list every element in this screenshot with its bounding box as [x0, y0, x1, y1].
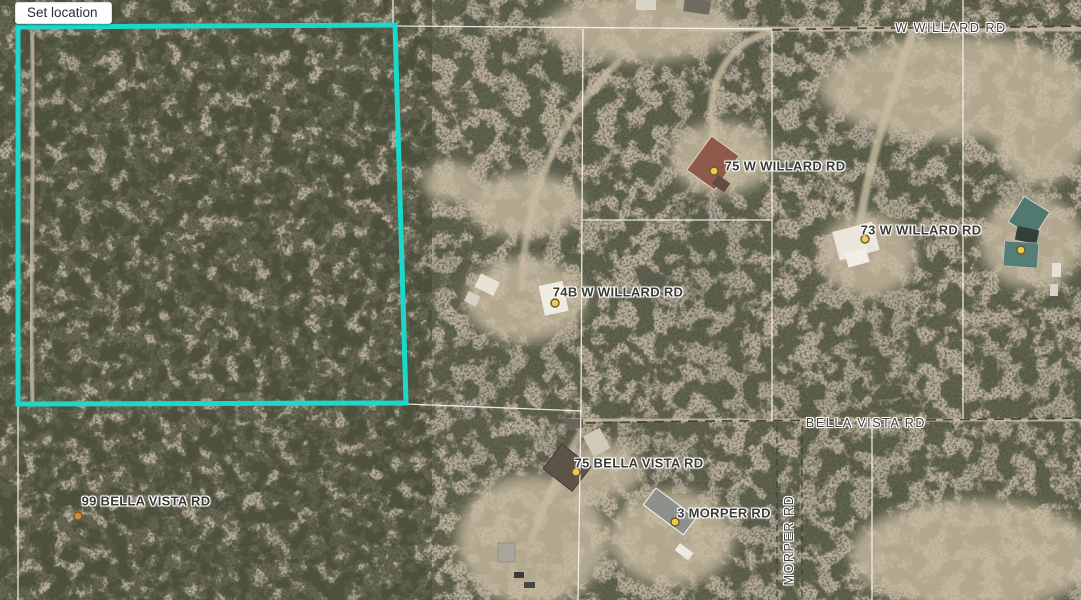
address-label-75-w-willard: 75 W WILLARD RD [725, 159, 846, 174]
set-location-button[interactable]: Set location [15, 2, 112, 24]
road-label-morper-rd: MORPER RD [782, 495, 796, 586]
address-label-73-w-willard: 73 W WILLARD RD [861, 223, 982, 238]
parcel-point-marker[interactable] [551, 299, 559, 307]
parcel-point-marker[interactable] [710, 167, 718, 175]
address-label-75-bella-vista: 75 BELLA VISTA RD [575, 456, 704, 471]
address-label-99-bella-vista: 99 BELLA VISTA RD [82, 494, 211, 509]
parcel-point-marker[interactable] [1017, 246, 1025, 254]
address-label-74b-w-willard: 74B W WILLARD RD [553, 285, 683, 300]
parcel-point-marker[interactable] [74, 512, 82, 520]
road-label-w-willard-rd: W WILLARD RD [895, 21, 1007, 35]
vehicle [1050, 284, 1058, 296]
building-footprint [498, 543, 515, 562]
address-label-3-morper: 3 MORPER RD [677, 506, 771, 521]
vehicle [1052, 263, 1061, 277]
vehicle [524, 582, 535, 588]
map-view[interactable]: W WILLARD RD BELLA VISTA RD MORPER RD 75… [0, 0, 1081, 600]
aerial-imagery[interactable] [0, 0, 1081, 600]
building-footprint [636, 0, 656, 10]
vehicle [514, 572, 524, 578]
road-label-bella-vista-rd: BELLA VISTA RD [806, 416, 926, 430]
